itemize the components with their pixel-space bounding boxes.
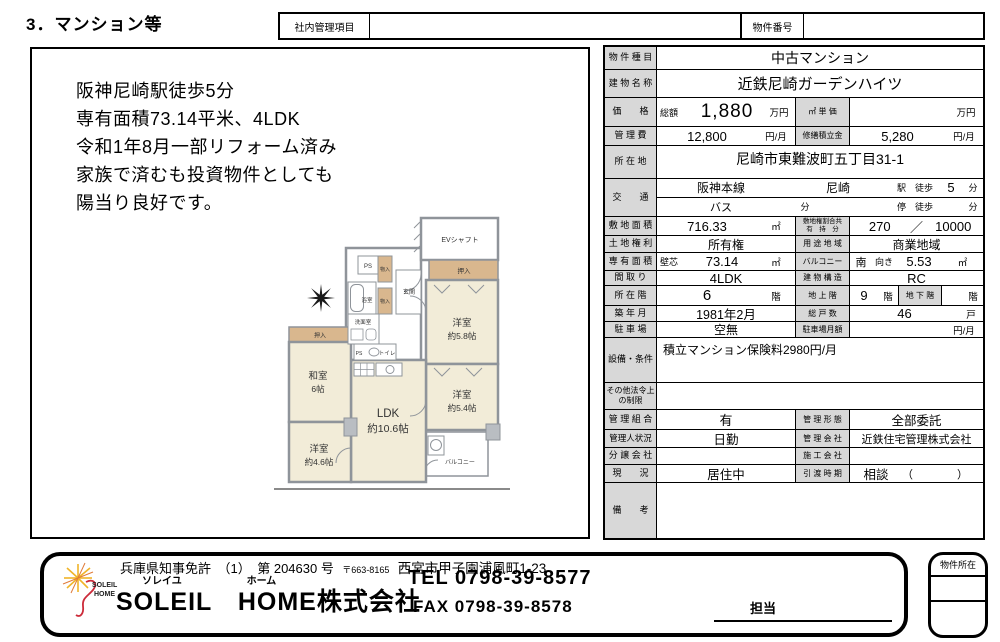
floor-unit: 階 <box>757 286 795 305</box>
label-bath: 浴室 <box>361 296 373 304</box>
mgmt-form-value: 全部委託 <box>850 410 983 429</box>
price-sqm-unit: 万円 <box>949 98 983 126</box>
row-label: 管 理 費 <box>605 127 657 145</box>
stamp-section[interactable] <box>931 600 985 638</box>
total-units-unit: 戸 <box>959 306 983 321</box>
table-row-remarks: 備 考 <box>605 483 983 538</box>
balcony-area-unit: ㎡ <box>942 253 983 270</box>
room-label-western46: 洋室 <box>309 443 328 455</box>
land-share-slash: ／ <box>910 217 924 235</box>
room-label-balcony: バルコニー <box>445 459 475 466</box>
walk-minutes: 5 <box>939 179 963 197</box>
description-line: 専有面積73.14平米、4LDK <box>76 105 337 133</box>
walk-label: 駅 徒歩 <box>891 179 939 197</box>
remarks-value <box>657 483 983 538</box>
phone-number: TEL 0798-39-8577 <box>408 567 592 590</box>
land-share-numerator: 270 <box>850 217 910 235</box>
label-storage: 物入 <box>380 298 390 305</box>
fax-number: FAX 0798-39-8578 <box>413 597 573 617</box>
table-row-property-type: 物 件 種 目 中古マンション <box>605 47 983 70</box>
train-line: 阪神本線 <box>657 179 785 197</box>
table-row-building-name: 建 物 名 称 近鉄尼崎ガーデンハイツ <box>605 70 983 98</box>
zone-label: 用 途 地 域 <box>795 236 850 252</box>
row-label: 土 地 権 利 <box>605 236 657 252</box>
row-label: 駐 車 場 <box>605 322 657 337</box>
station-name: 尼崎 <box>785 179 891 197</box>
row-label: 現 況 <box>605 465 657 482</box>
table-row-land-area: 敷 地 面 積 716.33 ㎡ 敷地権割合共 有 持 分 270 ／ 1000… <box>605 217 983 236</box>
minutes-label: 分 <box>963 179 983 197</box>
table-row-location: 所 在 地 尼崎市東難波町五丁目31-1 <box>605 146 983 179</box>
property-spec-table: 物 件 種 目 中古マンション 建 物 名 称 近鉄尼崎ガーデンハイツ 価 格 … <box>603 45 985 540</box>
property-number-label: 物件番号 <box>742 14 804 38</box>
internal-management-field[interactable] <box>370 14 742 38</box>
room-label-ev-shaft: EVシャフト <box>441 236 478 244</box>
internal-management-label: 社内管理項目 <box>280 14 370 38</box>
page-title: 3．マンション等 <box>26 10 162 35</box>
logo-text-soleil: SOLEIL <box>92 582 118 589</box>
label-storage: 物入 <box>380 266 390 273</box>
total-units-value: 46 <box>850 306 959 321</box>
table-row-parking: 駐 車 場 空無 駐車場月額 円/月 <box>605 322 983 338</box>
room-label-japanese: 和室 <box>308 370 327 382</box>
room-label-ldk: LDK <box>377 408 400 420</box>
repair-fund-value: 5,280 <box>850 127 945 145</box>
exclusive-area-value: 73.14 <box>687 253 757 270</box>
price-unit: 万円 <box>763 98 795 126</box>
construction-company-label: 施 工 会 社 <box>795 448 850 464</box>
mgmt-company-value: 近鉄住宅管理株式会社 <box>850 430 983 447</box>
room-size-western54: 約5.4帖 <box>448 403 477 413</box>
label-ps: PS <box>364 264 372 270</box>
property-number-field[interactable] <box>804 14 983 38</box>
ldk-room <box>351 360 426 482</box>
zone-value: 商業地域 <box>850 236 983 252</box>
row-label: 設備・条件 <box>605 338 657 382</box>
row-label: 備 考 <box>605 483 657 538</box>
location-value: 尼崎市東難波町五丁目31-1 <box>657 146 983 178</box>
description-line: 家族で済むも投資物件としても <box>76 161 337 189</box>
price-total-value: 1,880 <box>691 98 763 126</box>
room-size-western46: 約4.6帖 <box>305 457 334 467</box>
balcony-direction-suffix: 向き <box>872 253 896 270</box>
row-label: 所 在 階 <box>605 286 657 305</box>
price-sqm-label: ㎡ 単 価 <box>795 98 850 126</box>
property-type-value: 中古マンション <box>657 47 983 69</box>
label-toilet: トイレ <box>379 351 396 357</box>
pillar <box>486 424 500 440</box>
table-row-mgmt-assoc: 管 理 組 合 有 管 理 形 態 全部委託 <box>605 410 983 430</box>
table-row-land-rights: 土 地 権 利 所有権 用 途 地 域 商業地域 <box>605 236 983 253</box>
manager-status-value: 日勤 <box>657 430 795 447</box>
land-rights-value: 所有権 <box>657 236 795 252</box>
description-line: 阪神尼崎駅徒歩5分 <box>76 77 337 105</box>
stamp-section[interactable] <box>931 575 985 600</box>
total-units-label: 総 戸 数 <box>795 306 850 321</box>
parking-monthly-label: 駐車場月額 <box>795 322 850 337</box>
table-row-built: 築 年 月 1981年2月 総 戸 数 46 戸 <box>605 306 983 322</box>
mgmt-fee-unit: 円/月 <box>757 127 795 145</box>
balcony-direction: 南 <box>850 253 872 270</box>
floors-above-label: 地 上 階 <box>795 286 850 305</box>
handover-label: 引 渡 時 期 <box>795 465 850 482</box>
table-row-other-restrictions: その他法令上の制限 <box>605 383 983 410</box>
room-label-western58: 洋室 <box>452 317 471 329</box>
bus-minutes-label: 分 <box>785 198 825 216</box>
stop-walk-label: 停 徒歩 <box>891 198 939 216</box>
japanese-room <box>289 342 351 422</box>
pillar <box>344 418 357 436</box>
room-size-western58: 約5.8帖 <box>448 331 477 341</box>
property-description: 阪神尼崎駅徒歩5分 専有面積73.14平米、4LDK 令和1年8月一部リフォーム… <box>76 77 337 217</box>
mgmt-company-label: 管 理 会 社 <box>795 430 850 447</box>
balcony <box>424 432 488 476</box>
parking-monthly-unit: 円/月 <box>945 322 983 337</box>
exclusive-area-unit: ㎡ <box>757 253 795 270</box>
floor-value: 6 <box>657 286 757 305</box>
price-total-label: 総額 <box>657 98 691 126</box>
land-area-value: 716.33 <box>657 217 757 235</box>
row-label: 物 件 種 目 <box>605 47 657 69</box>
table-row-equipment: 設備・条件 積立マンション保険料2980円/月 <box>605 338 983 383</box>
other-restrictions-value <box>657 383 983 409</box>
staff-in-charge-field[interactable]: 担当 <box>714 598 892 622</box>
row-label: 築 年 月 <box>605 306 657 321</box>
balcony-label: バルコニー <box>795 253 850 270</box>
table-row-exclusive-area: 専 有 面 積 壁芯 73.14 ㎡ バルコニー 南 向き 5.53 ㎡ <box>605 253 983 271</box>
price-sqm-value <box>850 98 949 126</box>
label-ps: PS <box>356 351 363 357</box>
built-date-value: 1981年2月 <box>657 306 795 321</box>
table-row-manager: 管理人状況 日勤 管 理 会 社 近鉄住宅管理株式会社 <box>605 430 983 448</box>
mgmt-assoc-value: 有 <box>657 410 795 429</box>
row-label: 価 格 <box>605 98 657 126</box>
row-label: 管 理 組 合 <box>605 410 657 429</box>
sales-company-value <box>657 448 795 464</box>
room-size-japanese: 6帖 <box>311 384 325 394</box>
handover-value: 相談 <box>850 465 902 482</box>
transport-bus-row: バス 分 停 徒歩 分 <box>657 198 983 216</box>
construction-company-value <box>850 448 983 464</box>
label-entrance: 玄関 <box>403 288 415 296</box>
row-label: 敷 地 面 積 <box>605 217 657 235</box>
soleil-home-logo: SOLEIL HOME <box>56 560 118 630</box>
row-label: 建 物 名 称 <box>605 70 657 97</box>
parking-value: 空無 <box>657 322 795 337</box>
repair-fund-unit: 円/月 <box>945 127 983 145</box>
floors-above-unit: 階 <box>878 286 898 305</box>
land-area-unit: ㎡ <box>757 217 795 235</box>
transport-train-row: 阪神本線 尼崎 駅 徒歩 5 分 <box>657 179 983 198</box>
table-row-transport: 交 通 阪神本線 尼崎 駅 徒歩 5 分 バス 分 停 徒歩 分 <box>605 179 983 217</box>
room-label-closet: 押入 <box>458 266 472 275</box>
company-footer: SOLEIL HOME 兵庫県知事免許 （1） 第 204630 号 〒663-… <box>40 552 908 637</box>
table-row-sales-company: 分 譲 会 社 施 工 会 社 <box>605 448 983 465</box>
row-label: 間 取 り <box>605 271 657 285</box>
mgmt-fee-value: 12,800 <box>657 127 757 145</box>
row-label: 交 通 <box>605 179 657 216</box>
row-label: その他法令上の制限 <box>605 383 657 409</box>
stamp-label: 物件所在 <box>931 555 985 575</box>
company-name: SOLEIL HOME株式会社 <box>116 582 421 618</box>
floor-plan: EVシャフト 押入 洋室 約5.8帖 洋室 約5.4帖 バルコニー LDK 約1… <box>274 212 510 496</box>
land-share-denominator: 10000 <box>924 217 984 235</box>
mgmt-form-label: 管 理 形 態 <box>795 410 850 429</box>
table-row-layout: 間 取 り 4LDK 建 物 構 造 RC <box>605 271 983 286</box>
floor-plan-svg: EVシャフト 押入 洋室 約5.8帖 洋室 約5.4帖 バルコニー LDK 約1… <box>274 212 510 496</box>
parking-monthly-value <box>850 322 945 337</box>
description-line: 令和1年8月一部リフォーム済み <box>76 133 337 161</box>
logo-text-home: HOME <box>94 591 115 598</box>
equipment-value: 積立マンション保険料2980円/月 <box>657 338 983 382</box>
row-label: 所 在 地 <box>605 146 657 178</box>
floors-below-unit: 階 <box>963 286 983 305</box>
table-row-price: 価 格 総額 1,880 万円 ㎡ 単 価 万円 <box>605 98 983 127</box>
row-label: 専 有 面 積 <box>605 253 657 270</box>
table-row-mgmt-fee: 管 理 費 12,800 円/月 修繕積立金 5,280 円/月 <box>605 127 983 146</box>
bus-label: バス <box>657 198 785 216</box>
room-size-ldk: 約10.6帖 <box>367 422 409 435</box>
property-sheet-page: 3．マンション等 社内管理項目 物件番号 阪神尼崎駅徒歩5分 専有面積73.14… <box>0 0 1000 642</box>
header-strip: 社内管理項目 物件番号 <box>278 12 985 40</box>
kitchen-sink <box>376 363 402 376</box>
repair-fund-label: 修繕積立金 <box>795 127 850 145</box>
table-row-current-status: 現 況 居住中 引 渡 時 期 相談 （ ） <box>605 465 983 483</box>
staff-label: 担当 <box>750 601 776 616</box>
land-share-label: 敷地権割合共 有 持 分 <box>795 217 850 235</box>
room-label-closet: 押入 <box>314 332 326 340</box>
balcony-area-value: 5.53 <box>896 253 942 270</box>
structure-value: RC <box>850 271 983 285</box>
structure-label: 建 物 構 造 <box>795 271 850 285</box>
postal-code: 〒663-8165 <box>342 565 389 575</box>
handover-paren: （ ） <box>902 465 983 482</box>
current-status-value: 居住中 <box>657 465 795 482</box>
row-label: 管理人状況 <box>605 430 657 447</box>
compass-star <box>307 284 335 312</box>
property-location-stamp-box[interactable]: 物件所在 <box>928 552 988 638</box>
minutes-label: 分 <box>963 198 983 216</box>
floors-below-value <box>942 286 963 305</box>
label-washroom: 洗面室 <box>355 318 372 326</box>
room-label-western54: 洋室 <box>452 389 471 401</box>
table-row-floor: 所 在 階 6 階 地 上 階 9 階 地 下 階 階 <box>605 286 983 306</box>
floors-above-value: 9 <box>850 286 878 305</box>
floors-below-label: 地 下 階 <box>898 286 942 305</box>
building-name-value: 近鉄尼崎ガーデンハイツ <box>657 70 983 97</box>
wall-core-label: 壁芯 <box>657 253 687 270</box>
row-label: 分 譲 会 社 <box>605 448 657 464</box>
layout-value: 4LDK <box>657 271 795 285</box>
property-description-box: 阪神尼崎駅徒歩5分 専有面積73.14平米、4LDK 令和1年8月一部リフォーム… <box>30 47 590 539</box>
